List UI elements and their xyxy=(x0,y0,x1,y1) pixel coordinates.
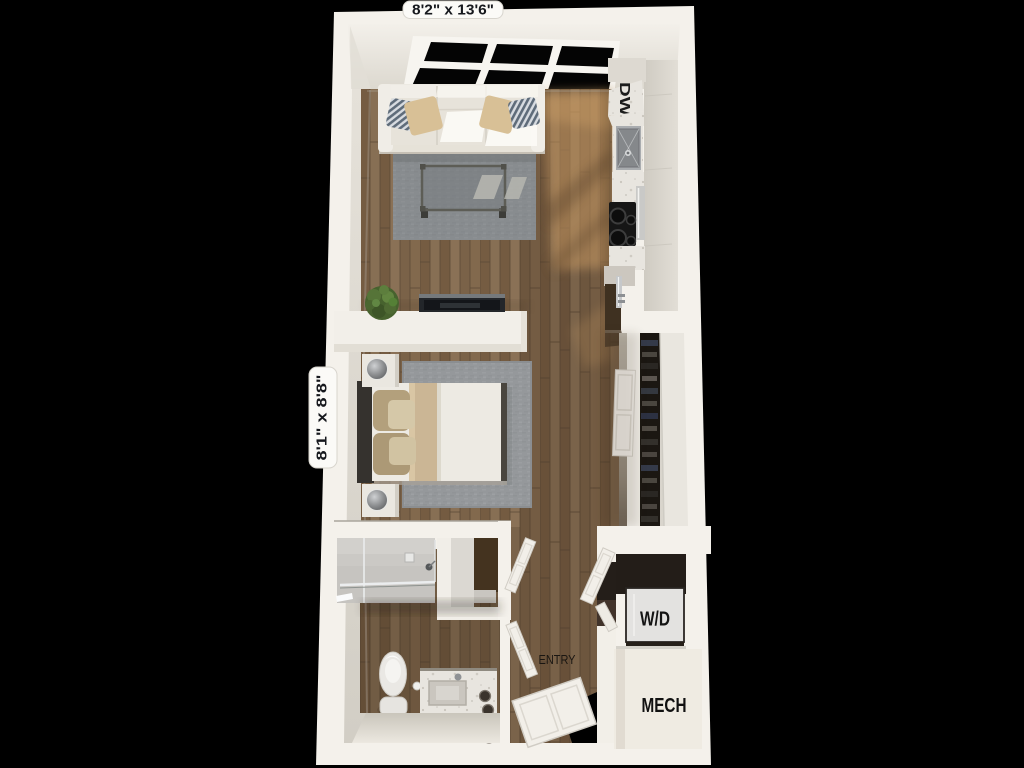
svg-text:W/D: W/D xyxy=(640,609,670,631)
svg-text:8'1" x 8'8": 8'1" x 8'8" xyxy=(313,375,330,461)
svg-text:8'2" x 13'6": 8'2" x 13'6" xyxy=(412,2,494,19)
svg-text:DW: DW xyxy=(616,82,633,117)
svg-text:MECH: MECH xyxy=(642,695,687,717)
svg-text:ENTRY: ENTRY xyxy=(539,652,576,667)
